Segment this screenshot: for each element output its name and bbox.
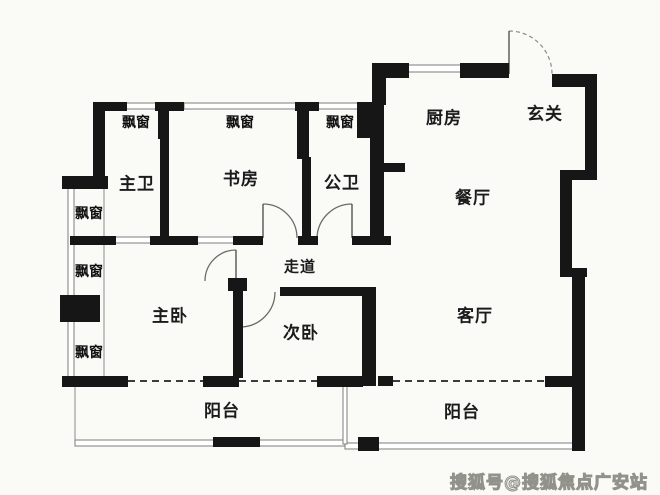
bay-window-label-left-2: 飘窗 xyxy=(75,261,103,281)
room-label-living-room: 客厅 xyxy=(457,302,493,327)
room-label-guest-bath: 公卫 xyxy=(324,169,360,194)
watermark-text: 搜狐号@搜狐焦点广安站 xyxy=(450,468,648,493)
bay-window-label-top-1: 飘窗 xyxy=(122,112,150,132)
bay-window-label-left-1: 飘窗 xyxy=(75,203,103,223)
room-label-master-bedroom: 主卧 xyxy=(152,302,188,327)
room-label-master-bath: 主卫 xyxy=(119,170,155,195)
room-label-foyer: 玄关 xyxy=(527,100,563,125)
room-label-study: 书房 xyxy=(223,165,259,190)
bay-window-label-top-2: 飘窗 xyxy=(226,112,254,132)
room-label-balcony-left: 阳台 xyxy=(204,397,240,422)
bay-window-label-left-3: 飘窗 xyxy=(75,342,103,362)
floor-plan-drawing xyxy=(0,0,660,495)
room-label-second-bedroom: 次卧 xyxy=(283,319,319,344)
bay-window-label-top-3: 飘窗 xyxy=(326,112,354,132)
room-label-corridor: 走道 xyxy=(284,256,316,277)
room-label-kitchen: 厨房 xyxy=(426,104,462,129)
floor-plan-page: 主卫 书房 公卫 厨房 玄关 餐厅 走道 主卧 次卧 客厅 阳台 阳台 飘窗 飘… xyxy=(0,0,660,495)
room-label-dining: 餐厅 xyxy=(455,184,491,209)
room-label-balcony-right: 阳台 xyxy=(444,398,480,423)
